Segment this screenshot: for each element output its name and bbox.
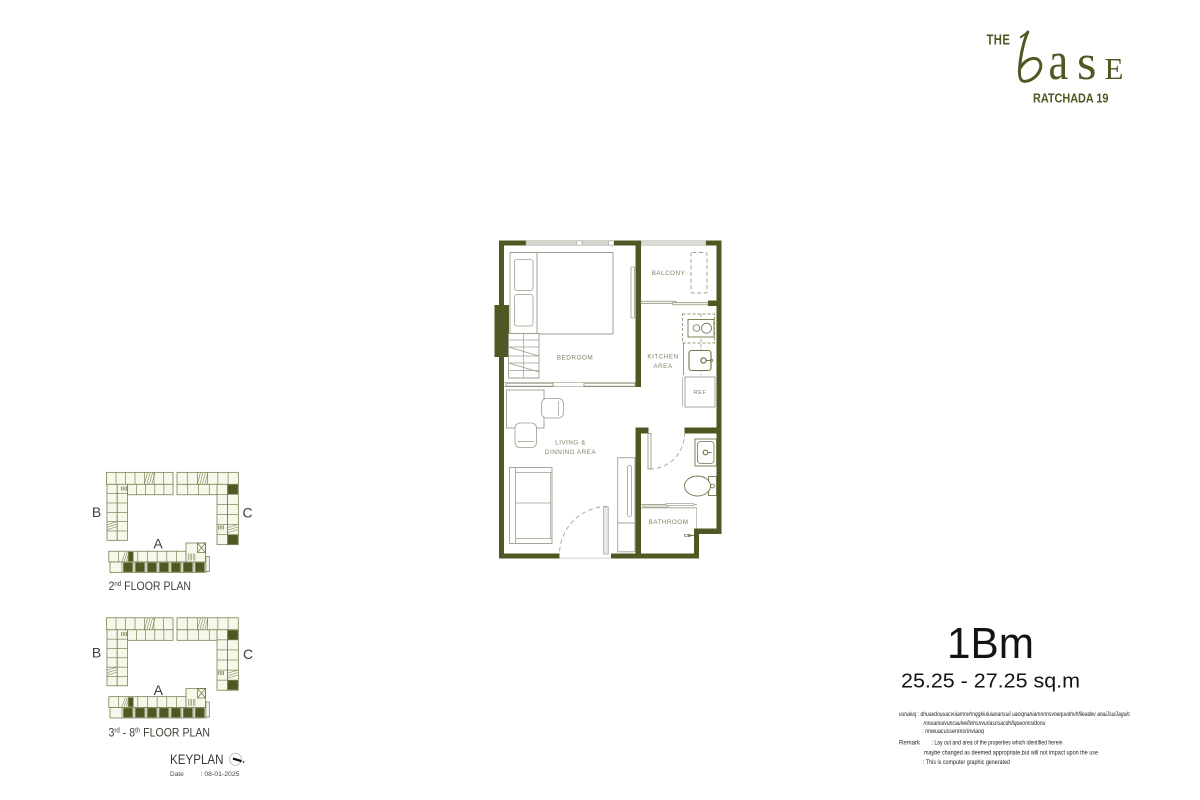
svg-text:: This is computer graphic gen: : This is computer graphic generated	[923, 760, 1010, 766]
svg-text:BATHROOM: BATHROOM	[649, 519, 689, 526]
svg-text:C: C	[242, 505, 252, 521]
svg-text:1Bm: 1Bm	[947, 619, 1034, 668]
svg-text:25.25 - 27.25 sq.m: 25.25 - 27.25 sq.m	[901, 669, 1080, 692]
svg-text:A: A	[153, 536, 163, 552]
svg-text:REF: REF	[693, 390, 706, 396]
svg-text:B: B	[92, 504, 101, 520]
svg-text:a: a	[1049, 31, 1069, 91]
svg-text:RATCHADA 19: RATCHADA 19	[1033, 92, 1109, 106]
svg-text:3rd - 8th FLOOR PLAN: 3rd - 8th FLOOR PLAN	[109, 727, 211, 740]
svg-text:KEYPLAN: KEYPLAN	[170, 752, 224, 767]
svg-text:C: C	[243, 646, 253, 662]
svg-text:mnuamuivuncaulveflvlnsnvuriasn: mnuamuivuncaulveflvlnsnvuriasnsacdnfique…	[924, 721, 1047, 727]
svg-text:Remark: Remark	[899, 740, 921, 746]
svg-text:KITCHEN: KITCHEN	[647, 354, 678, 361]
svg-text:2nd FLOOR PLAN: 2nd FLOOR PLAN	[109, 580, 192, 593]
svg-text:Date: Date	[170, 771, 184, 778]
svg-text:: 08-01-2025: : 08-01-2025	[201, 771, 240, 778]
svg-text:DINNING AREA: DINNING AREA	[545, 449, 596, 456]
svg-text:BALCONY: BALCONY	[652, 270, 686, 277]
svg-text:: Lay out and area of the prop: : Lay out and area of the properties whi…	[932, 740, 1063, 746]
svg-text:vunaivq : dnuavdouuacvuiamnvhn: vunaivq : dnuavdouuacvuiamnvhnqgkiuluian…	[899, 712, 1130, 718]
svg-text:THE: THE	[987, 31, 1011, 48]
svg-text:maybe changed as deemed approp: maybe changed as deemed appropriate,but …	[924, 751, 1099, 757]
svg-text:A: A	[154, 682, 164, 698]
svg-text:E: E	[1105, 51, 1124, 86]
svg-text:s: s	[1077, 34, 1096, 90]
svg-text:AREA: AREA	[653, 363, 672, 370]
svg-text:B: B	[92, 645, 101, 661]
svg-text:: nnwuacussenmsrinviaoq: : nnwuacussenmsrinviaoq	[922, 729, 985, 735]
svg-text:LIVING &: LIVING &	[555, 440, 586, 447]
svg-text:BEDROOM: BEDROOM	[557, 355, 594, 362]
